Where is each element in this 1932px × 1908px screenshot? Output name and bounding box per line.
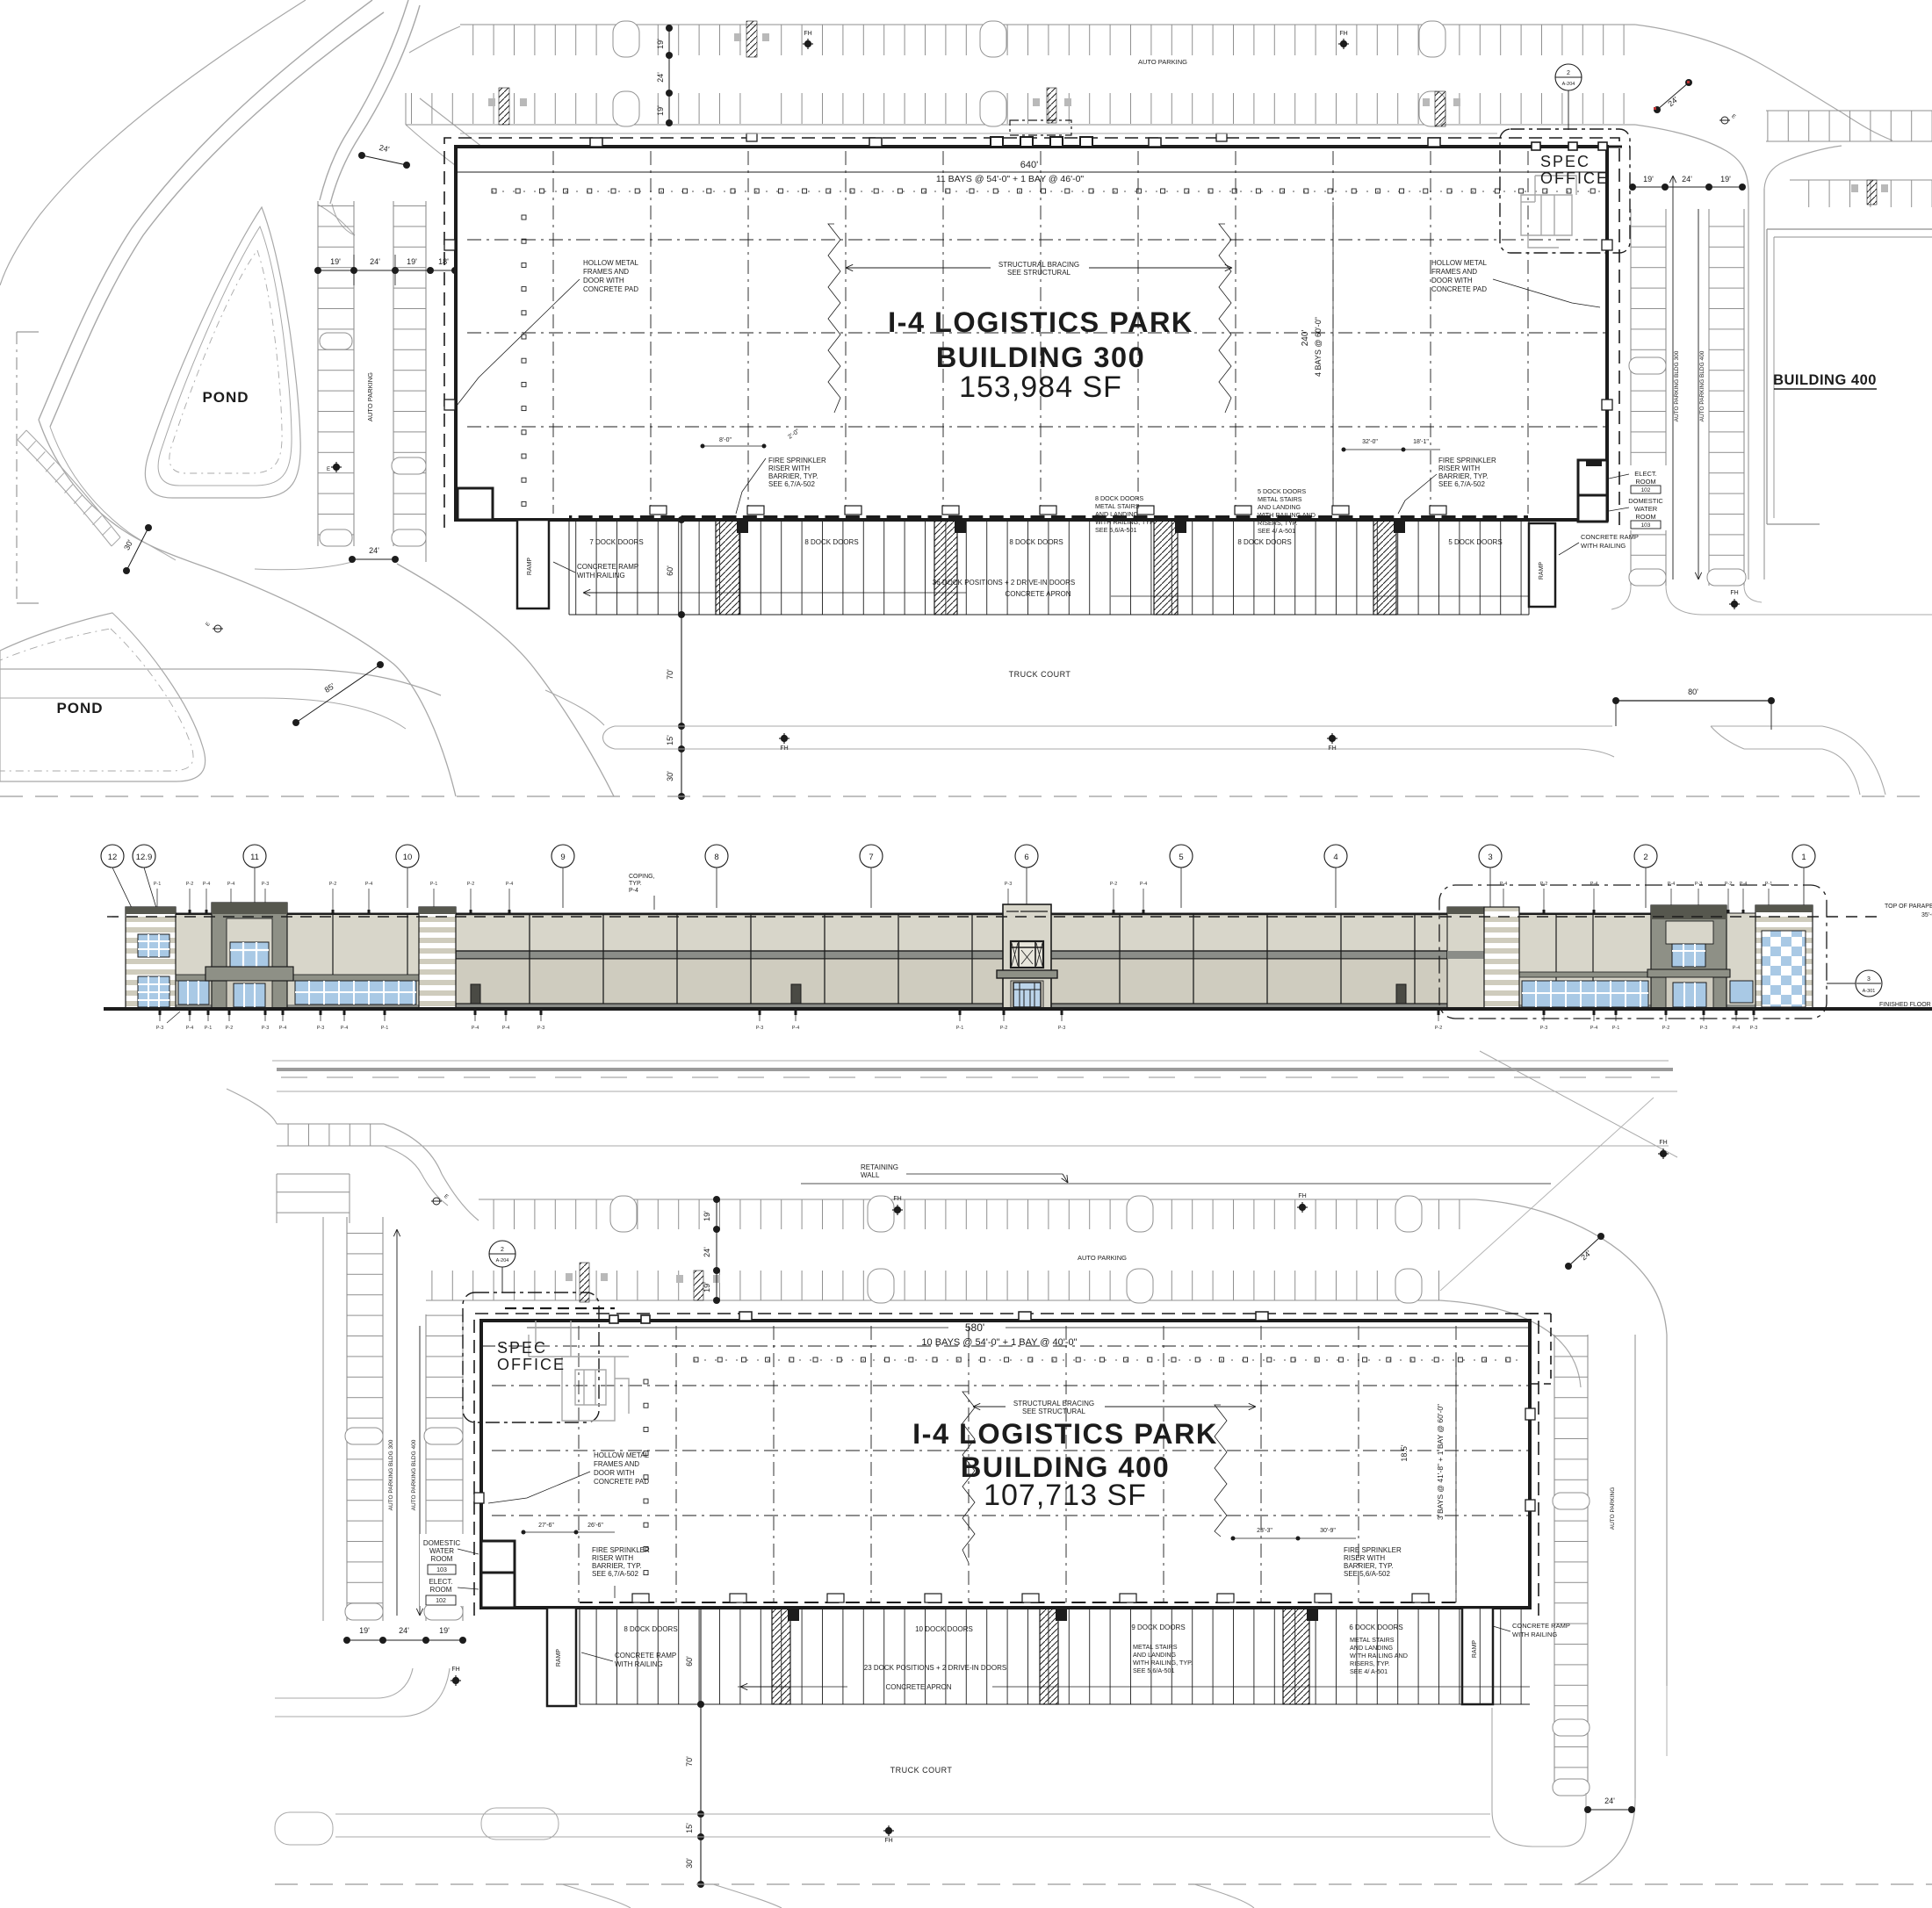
svg-text:E: E [327,467,330,472]
svg-text:8 DOCK DOORS: 8 DOCK DOORS [1237,538,1291,546]
svg-text:AUTO PARKING: AUTO PARKING [366,372,374,421]
svg-text:3: 3 [1488,853,1492,862]
svg-text:BUILDING 300: BUILDING 300 [936,342,1145,373]
svg-text:CONCRETE PAD: CONCRETE PAD [583,285,638,293]
svg-text:24': 24' [703,1247,711,1257]
svg-text:TRUCK COURT: TRUCK COURT [890,1766,953,1775]
svg-text:P-3: P-3 [537,1026,545,1031]
svg-text:26'-6": 26'-6" [588,1523,603,1529]
svg-text:METAL STAIRS: METAL STAIRS [1133,1643,1178,1651]
svg-text:A-301: A-301 [1863,989,1876,994]
svg-text:11 BAYS @ 54'-0" + 1 BAY @ 46': 11 BAYS @ 54'-0" + 1 BAY @ 46'-0" [936,174,1085,184]
svg-text:P-4: P-4 [1590,882,1598,887]
svg-text:ROOM: ROOM [1635,513,1655,521]
svg-text:P-4: P-4 [1590,1026,1598,1031]
svg-text:FH: FH [1730,590,1738,596]
svg-text:FH: FH [1339,31,1347,37]
svg-text:TRUCK COURT: TRUCK COURT [1009,670,1071,679]
svg-text:P-2: P-2 [186,882,194,887]
svg-text:70': 70' [666,669,674,680]
svg-text:CONCRETE RAMP: CONCRETE RAMP [1512,1622,1570,1630]
svg-text:RAMP: RAMP [556,1649,562,1667]
svg-text:10: 10 [403,853,413,862]
svg-text:19': 19' [330,257,341,266]
svg-text:P-4: P-4 [341,1026,349,1031]
svg-text:32'-0": 32'-0" [1362,439,1378,445]
svg-text:STRUCTURAL BRACING: STRUCTURAL BRACING [1013,1400,1094,1408]
svg-text:P-3: P-3 [1695,882,1703,887]
svg-text:AUTO PARKING: AUTO PARKING [1610,1487,1616,1530]
svg-text:11: 11 [250,853,259,862]
svg-text:P-3: P-3 [756,1026,764,1031]
svg-text:WITH RAILING, TYP.: WITH RAILING, TYP. [1095,518,1155,526]
svg-text:WITH RAILING AND: WITH RAILING AND [1258,511,1316,519]
svg-text:7 DOCK DOORS: 7 DOCK DOORS [589,538,643,546]
svg-text:P-4: P-4 [1733,1026,1741,1031]
svg-text:153,984 SF: 153,984 SF [959,371,1122,404]
svg-text:5 DOCK DOORS: 5 DOCK DOORS [1448,538,1502,546]
svg-text:P-2: P-2 [1435,1026,1443,1031]
svg-text:240': 240' [1301,330,1310,347]
svg-text:ELECT.: ELECT. [429,1578,452,1586]
svg-text:30': 30' [666,771,674,781]
svg-text:SEE 6,7/A-502: SEE 6,7/A-502 [768,480,815,488]
svg-text:P-4: P-4 [472,1026,479,1031]
svg-text:19': 19' [656,39,665,49]
svg-text:24': 24' [1604,1796,1615,1805]
svg-text:AUTO PARKING BLDG 300: AUTO PARKING BLDG 300 [388,1439,394,1510]
svg-text:DOMESTIC: DOMESTIC [423,1539,460,1547]
svg-text:P-1: P-1 [1765,882,1773,887]
svg-text:18.5': 18.5' [1400,1444,1409,1462]
svg-text:8 DOCK DOORS: 8 DOCK DOORS [624,1625,677,1633]
svg-text:P-2: P-2 [1110,882,1118,887]
svg-text:580': 580' [965,1321,984,1334]
svg-text:3 BAYS @ 41'-8" + 1 BAY @ 60'-: 3 BAYS @ 41'-8" + 1 BAY @ 60'-0" [1436,1404,1445,1520]
svg-text:15': 15' [685,1823,694,1833]
svg-text:P-1: P-1 [381,1026,389,1031]
svg-text:OFFICE: OFFICE [497,1356,566,1373]
svg-text:SEE 5,6/A-502: SEE 5,6/A-502 [1344,1570,1390,1578]
svg-text:CONCRETE RAMP: CONCRETE RAMP [615,1652,676,1660]
svg-text:WITH RAILING, TYP.: WITH RAILING, TYP. [1133,1659,1193,1667]
svg-text:TOP OF PARAPET: TOP OF PARAPET [1885,904,1932,910]
svg-text:60': 60' [685,1656,694,1667]
svg-text:P-1: P-1 [430,882,438,887]
svg-text:BARRIER, TYP.: BARRIER, TYP. [768,472,818,480]
svg-text:CONCRETE RAMP: CONCRETE RAMP [577,563,638,571]
svg-text:8: 8 [714,853,718,862]
svg-text:I-4 LOGISTICS PARK: I-4 LOGISTICS PARK [888,306,1193,338]
svg-text:P-4: P-4 [186,1026,194,1031]
svg-text:METAL STAIRS: METAL STAIRS [1258,495,1302,503]
svg-text:RETAINING: RETAINING [861,1163,898,1171]
svg-text:SPEC: SPEC [1540,153,1590,170]
svg-text:P-3: P-3 [156,1026,164,1031]
svg-text:DOOR WITH: DOOR WITH [583,277,624,284]
svg-text:P-2: P-2 [1000,1026,1008,1031]
svg-text:SEE 4/ A-501: SEE 4/ A-501 [1258,527,1295,535]
svg-text:6: 6 [1024,853,1028,862]
svg-text:WALL: WALL [861,1171,880,1179]
svg-text:19': 19' [703,1282,711,1292]
svg-text:10 DOCK DOORS: 10 DOCK DOORS [915,1625,973,1633]
svg-text:P-4: P-4 [1140,882,1148,887]
svg-text:30'-9": 30'-9" [1320,1528,1336,1534]
svg-text:FRAMES AND: FRAMES AND [1431,268,1477,276]
svg-text:12.9: 12.9 [136,853,153,862]
svg-text:FIRE SPRINKLER: FIRE SPRINKLER [1438,457,1496,464]
svg-text:12: 12 [108,853,118,862]
svg-text:RISERS, TYP.: RISERS, TYP. [1350,1660,1390,1667]
svg-text:BARRIER, TYP.: BARRIER, TYP. [1344,1562,1394,1570]
svg-text:AUTO PARKING BLDG 400: AUTO PARKING BLDG 400 [1699,350,1705,421]
svg-text:24': 24' [1682,175,1692,184]
svg-text:RISERS, TYP.: RISERS, TYP. [1258,519,1298,527]
svg-text:19': 19' [359,1626,370,1635]
svg-text:BARRIER, TYP.: BARRIER, TYP. [1438,472,1489,480]
svg-text:19': 19' [703,1211,711,1221]
svg-text:P-3: P-3 [1750,1026,1758,1031]
svg-text:24': 24' [399,1626,409,1635]
svg-text:P-2: P-2 [467,882,475,887]
svg-text:SEE 5,6/A-501: SEE 5,6/A-501 [1095,526,1137,534]
svg-text:A-204: A-204 [1562,82,1575,87]
svg-text:P-4: P-4 [502,1026,510,1031]
svg-text:A-204: A-204 [496,1258,509,1264]
svg-text:AUTO PARKING BLDG 400: AUTO PARKING BLDG 400 [411,1439,417,1510]
svg-text:18': 18' [438,257,449,266]
svg-text:103: 103 [436,1567,447,1573]
svg-text:P-4: P-4 [203,882,211,887]
svg-text:RISER WITH: RISER WITH [592,1554,633,1562]
svg-text:9 DOCK DOORS: 9 DOCK DOORS [1131,1624,1185,1631]
svg-text:P-4: P-4 [506,882,514,887]
svg-text:P-3: P-3 [1005,882,1013,887]
svg-text:DOMESTIC: DOMESTIC [1628,497,1663,505]
svg-text:23'-3": 23'-3" [1257,1528,1272,1534]
svg-text:RAMP: RAMP [1539,562,1545,580]
svg-text:FINISHED FLOOR: FINISHED FLOOR [1879,1002,1931,1008]
svg-text:P-3: P-3 [317,1026,325,1031]
svg-text:ROOM: ROOM [431,1555,453,1563]
svg-text:18'-1": 18'-1" [1413,439,1429,445]
svg-text:24': 24' [370,257,380,266]
svg-text:35'-0": 35'-0" [1921,912,1932,918]
svg-text:I-4 LOGISTICS PARK: I-4 LOGISTICS PARK [912,1418,1218,1450]
svg-text:SPEC: SPEC [497,1339,547,1357]
svg-text:WITH RAILING: WITH RAILING [577,572,625,580]
svg-text:WITH RAILING: WITH RAILING [1512,1631,1557,1638]
svg-text:SEE 4/ A-501: SEE 4/ A-501 [1350,1667,1388,1675]
svg-text:COPING,: COPING, [629,874,655,880]
svg-text:8 DOCK DOORS: 8 DOCK DOORS [1095,494,1143,502]
svg-text:P-4: P-4 [629,888,638,894]
svg-text:WATER: WATER [429,1547,454,1555]
svg-text:23 DOCK POSITIONS + 2 DRIVE-IN: 23 DOCK POSITIONS + 2 DRIVE-IN DOORS [864,1664,1006,1672]
svg-text:CONCRETE APRON: CONCRETE APRON [1005,590,1071,598]
svg-text:7: 7 [869,853,873,862]
svg-text:AND LANDING: AND LANDING [1133,1651,1177,1659]
svg-text:P-4: P-4 [227,882,235,887]
svg-text:P-1: P-1 [956,1026,964,1031]
svg-text:8'-0": 8'-0" [719,437,732,443]
svg-text:30': 30' [685,1858,694,1868]
svg-text:P-4: P-4 [279,1026,287,1031]
svg-text:FH: FH [780,745,788,752]
svg-text:TYP.: TYP. [629,881,642,887]
svg-text:SEE 5,6/A-501: SEE 5,6/A-501 [1133,1667,1175,1674]
svg-text:8 DOCK DOORS: 8 DOCK DOORS [1009,538,1063,546]
svg-text:WITH RAILING: WITH RAILING [615,1660,663,1668]
svg-text:9: 9 [560,853,565,862]
svg-text:8 DOCK DOORS: 8 DOCK DOORS [804,538,858,546]
svg-text:P-4: P-4 [365,882,373,887]
svg-text:FH: FH [893,1196,901,1202]
svg-text:P-4: P-4 [1740,882,1748,887]
svg-text:ROOM: ROOM [1635,478,1655,486]
svg-text:107,713 SF: 107,713 SF [984,1479,1147,1512]
svg-text:FRAMES AND: FRAMES AND [583,268,629,276]
svg-text:70': 70' [685,1756,694,1767]
svg-text:ROOM: ROOM [430,1586,452,1594]
svg-text:AND LANDING: AND LANDING [1095,510,1139,518]
svg-text:SEE STRUCTURAL: SEE STRUCTURAL [1007,269,1071,277]
svg-text:P-1: P-1 [205,1026,213,1031]
svg-text:P-2: P-2 [1725,882,1733,887]
svg-text:P-1: P-1 [1612,1026,1620,1031]
svg-text:SEE STRUCTURAL: SEE STRUCTURAL [1022,1408,1086,1415]
svg-text:2: 2 [1567,70,1570,76]
svg-text:80': 80' [1688,688,1698,696]
svg-text:15': 15' [666,735,674,745]
svg-text:FIRE SPRINKLER: FIRE SPRINKLER [592,1546,650,1554]
svg-text:SEE 6,7/A-502: SEE 6,7/A-502 [592,1570,638,1578]
svg-text:19': 19' [1643,175,1654,184]
svg-text:AUTO PARKING: AUTO PARKING [1138,58,1187,66]
svg-text:36 DOCK POSITIONS + 2 DRIVE-IN: 36 DOCK POSITIONS + 2 DRIVE-IN DOORS [933,579,1075,587]
svg-text:AUTO PARKING: AUTO PARKING [1078,1254,1127,1262]
svg-text:FH: FH [804,31,811,37]
svg-text:P-3: P-3 [262,882,270,887]
svg-text:WITH RAILING: WITH RAILING [1581,542,1626,550]
svg-text:1: 1 [1801,853,1806,862]
svg-text:P-4: P-4 [1668,882,1676,887]
svg-text:19': 19' [439,1626,450,1635]
svg-text:P-3: P-3 [1540,1026,1548,1031]
svg-text:102: 102 [1641,487,1651,493]
svg-text:RISER WITH: RISER WITH [1438,464,1480,472]
svg-text:RAMP: RAMP [527,558,533,576]
svg-text:HOLLOW METAL: HOLLOW METAL [1431,259,1488,267]
svg-text:AUTO PARKING BLDG 300: AUTO PARKING BLDG 300 [1674,350,1680,421]
svg-text:METAL STAIRS: METAL STAIRS [1095,502,1140,510]
svg-text:ELECT.: ELECT. [1634,470,1656,478]
svg-text:RISER WITH: RISER WITH [1344,1554,1385,1562]
svg-text:METAL STAIRS: METAL STAIRS [1350,1636,1395,1644]
svg-text:10 BAYS @ 54'-0" + 1 BAY @ 40': 10 BAYS @ 54'-0" + 1 BAY @ 40'-0" [921,1337,1077,1348]
svg-text:RISER WITH: RISER WITH [768,464,810,472]
svg-text:P-1: P-1 [154,882,162,887]
svg-text:BUILDING 400: BUILDING 400 [1773,372,1877,388]
svg-text:2: 2 [501,1247,504,1253]
svg-text:POND: POND [56,700,103,716]
svg-text:103: 103 [1641,522,1651,529]
svg-text:60': 60' [666,565,674,576]
svg-text:5: 5 [1179,853,1183,862]
svg-text:BARRIER, TYP.: BARRIER, TYP. [592,1562,642,1570]
svg-text:2: 2 [1643,853,1647,862]
svg-text:19': 19' [407,257,417,266]
svg-text:24': 24' [369,546,379,555]
svg-text:P-3: P-3 [262,1026,270,1031]
svg-text:24': 24' [656,72,665,83]
svg-text:HOLLOW METAL: HOLLOW METAL [583,259,639,267]
svg-text:P-2: P-2 [329,882,337,887]
svg-text:P-3: P-3 [1700,1026,1708,1031]
svg-text:4: 4 [1333,853,1337,862]
svg-text:DOOR WITH: DOOR WITH [594,1469,635,1477]
svg-text:P-4: P-4 [792,1026,800,1031]
svg-text:4 BAYS @ 60'-0": 4 BAYS @ 60'-0" [1314,317,1323,377]
svg-text:STRUCTURAL BRACING: STRUCTURAL BRACING [998,261,1079,269]
svg-text:19': 19' [1720,175,1731,184]
svg-text:SEE 6,7/A-502: SEE 6,7/A-502 [1438,480,1485,488]
svg-text:AND LANDING: AND LANDING [1350,1644,1394,1652]
svg-text:POND: POND [202,389,249,406]
svg-text:CONCRETE RAMP: CONCRETE RAMP [1581,533,1639,541]
svg-text:FH: FH [884,1838,892,1844]
svg-text:FH: FH [1298,1193,1306,1199]
svg-text:P-2: P-2 [1540,882,1548,887]
svg-text:3: 3 [1867,976,1871,983]
svg-text:P-4: P-4 [1500,882,1508,887]
svg-text:27'-6": 27'-6" [538,1523,554,1529]
svg-text:CONCRETE PAD: CONCRETE PAD [594,1478,649,1486]
svg-text:P-3: P-3 [1058,1026,1066,1031]
svg-text:FRAMES AND: FRAMES AND [594,1460,639,1468]
svg-text:19': 19' [656,105,665,116]
svg-text:5 DOCK DOORS: 5 DOCK DOORS [1258,487,1306,495]
svg-text:FH: FH [1328,745,1336,752]
svg-text:HOLLOW METAL: HOLLOW METAL [594,1451,650,1459]
svg-text:P-2: P-2 [226,1026,234,1031]
svg-text:CONCRETE PAD: CONCRETE PAD [1431,285,1487,293]
svg-text:AND LANDING: AND LANDING [1258,503,1301,511]
svg-text:WATER: WATER [1634,505,1658,513]
svg-text:102: 102 [436,1598,446,1604]
svg-text:640': 640' [1020,160,1038,170]
svg-text:OFFICE: OFFICE [1540,169,1609,187]
svg-text:FIRE SPRINKLER: FIRE SPRINKLER [1344,1546,1402,1554]
svg-text:FIRE SPRINKLER: FIRE SPRINKLER [768,457,826,464]
svg-text:DOOR WITH: DOOR WITH [1431,277,1473,284]
svg-text:6 DOCK DOORS: 6 DOCK DOORS [1349,1624,1402,1631]
svg-text:CONCRETE APRON: CONCRETE APRON [885,1683,951,1691]
svg-text:P-2: P-2 [1662,1026,1670,1031]
svg-text:FH: FH [451,1667,459,1673]
svg-text:FH: FH [1659,1140,1667,1146]
svg-text:WITH RAILING AND: WITH RAILING AND [1350,1652,1408,1660]
